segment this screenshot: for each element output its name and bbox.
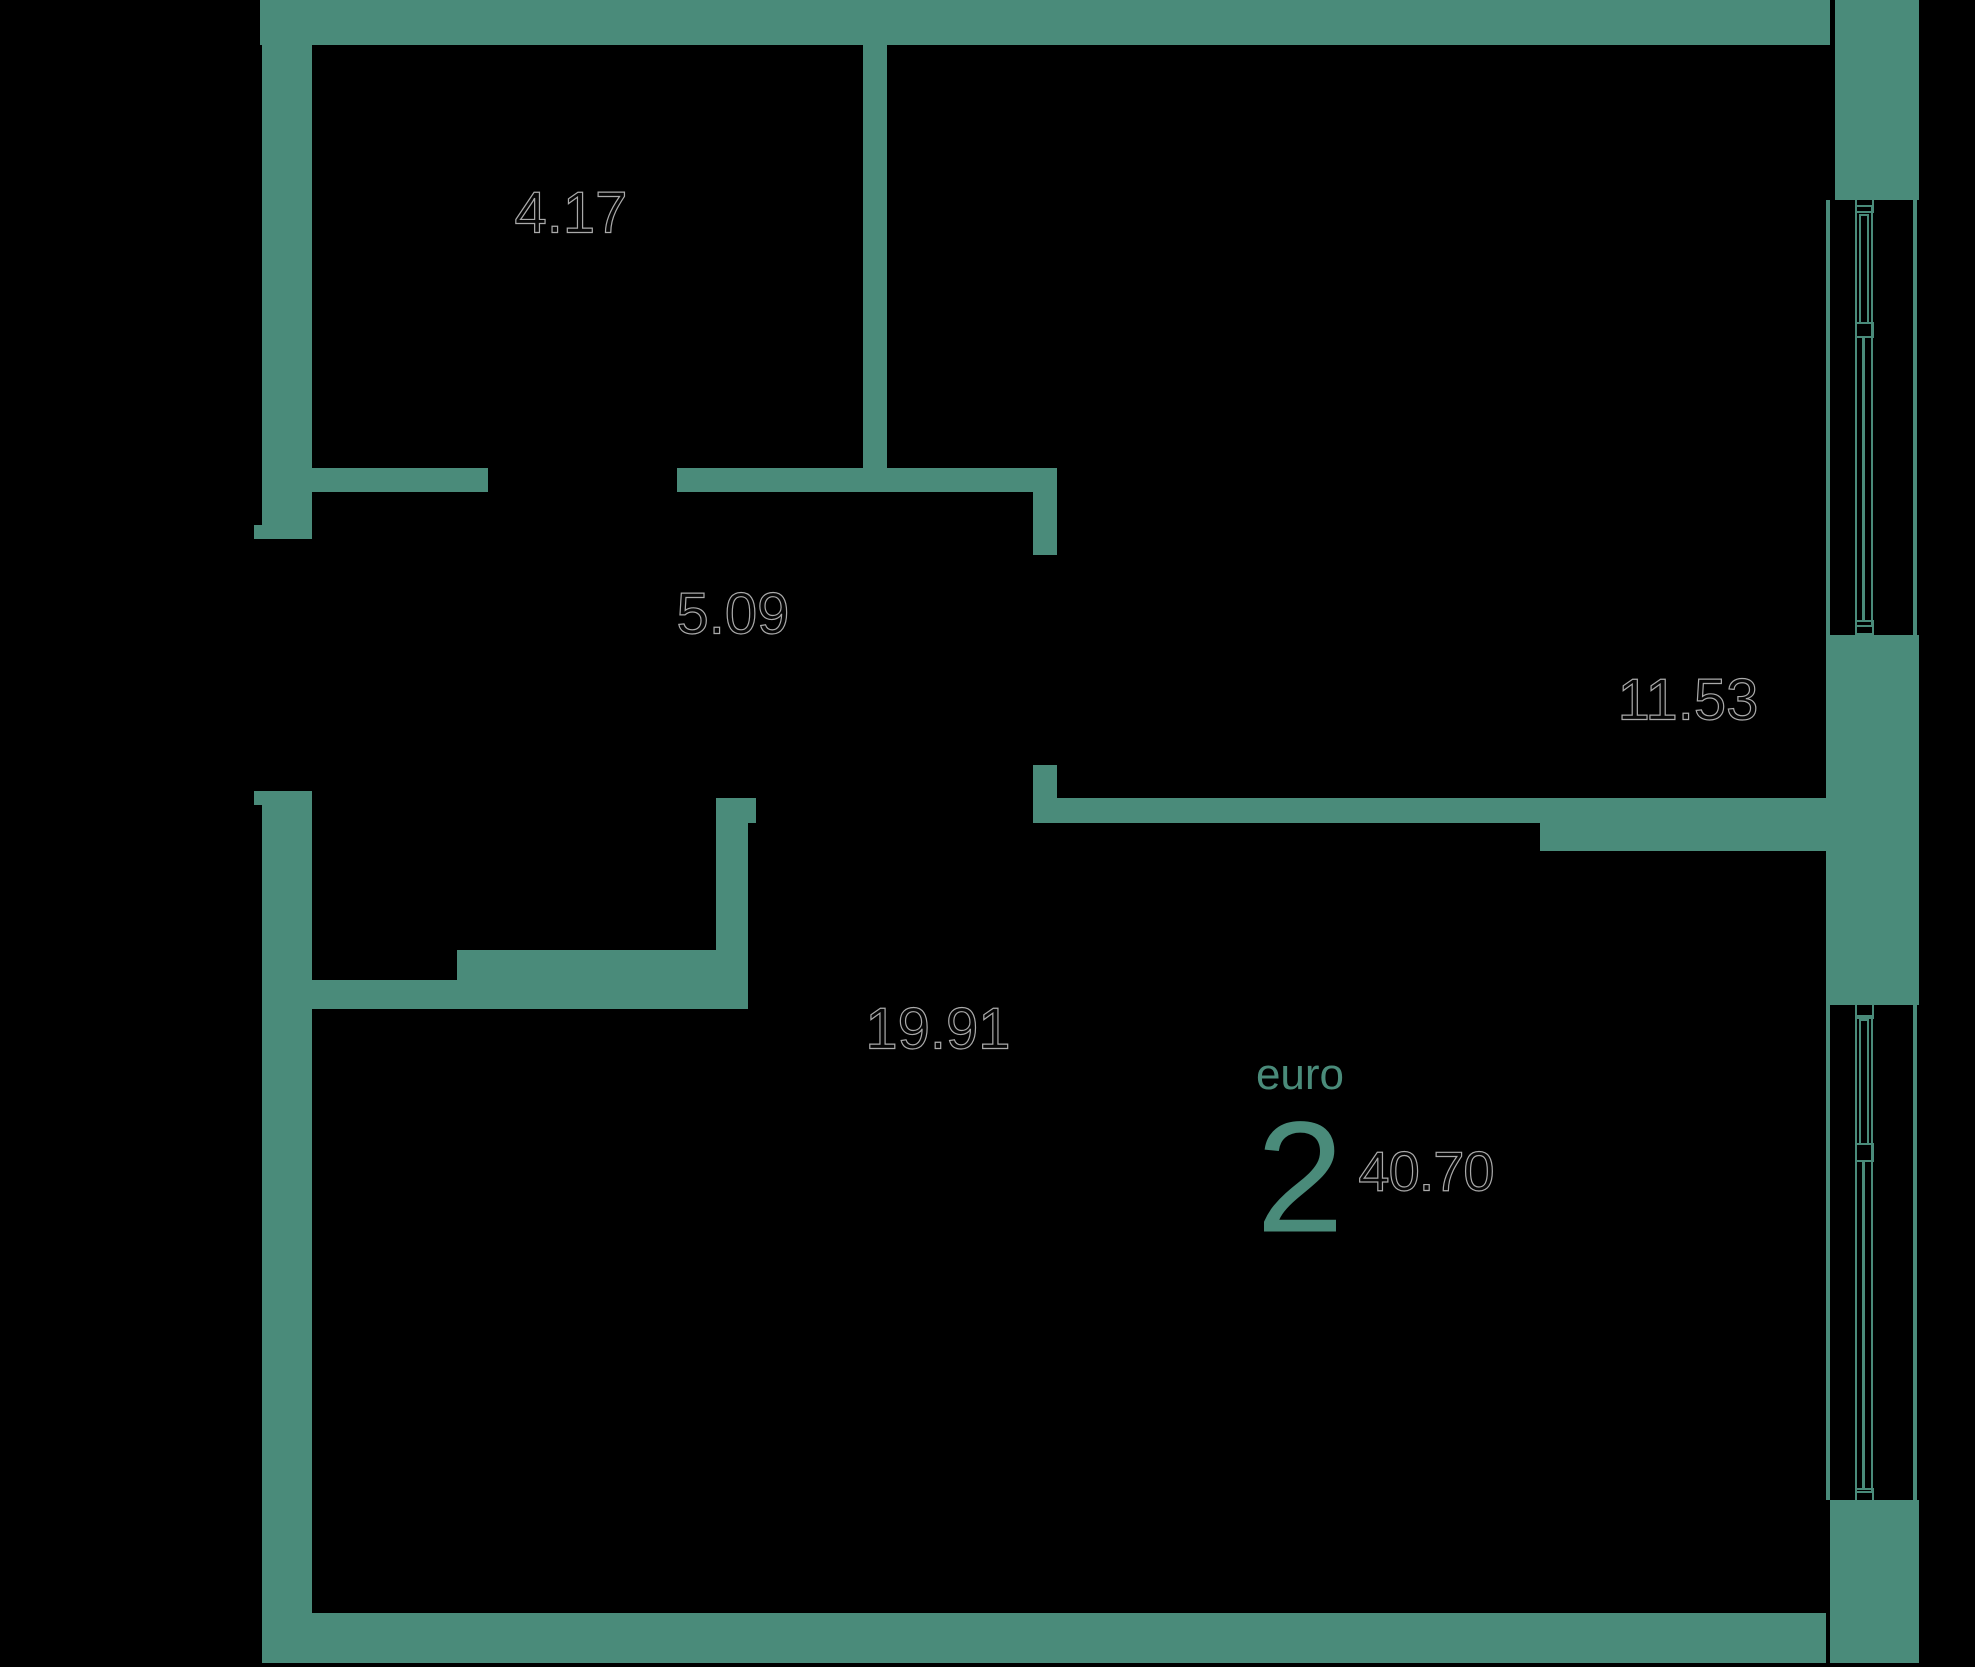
window1-sash <box>1859 214 1869 324</box>
window2-top-cap <box>1855 1003 1874 1019</box>
window2-sash <box>1859 1019 1869 1145</box>
left-door-jamb-upper <box>254 525 264 539</box>
room-area-bedroom: 11.53 <box>1618 667 1759 734</box>
hallway-left-wall <box>716 798 748 1009</box>
window2-mid-cap <box>1855 1143 1874 1162</box>
window1-top-cap <box>1855 197 1874 213</box>
bedroom-door-jamb-lower <box>1033 765 1057 800</box>
room-area-hallway: 5.09 <box>677 581 790 648</box>
window2-bottom-cap <box>1855 1488 1874 1503</box>
hallway-top-wall <box>677 468 1057 492</box>
top-right-corner-block <box>1835 0 1919 200</box>
window1-bottom-cap <box>1855 620 1874 635</box>
left-outer-wall-lower <box>262 791 312 1663</box>
room-area-bathroom: 4.17 <box>515 180 628 247</box>
bottom-outer-wall <box>262 1613 1826 1663</box>
living-top-wall-thin <box>312 980 457 1009</box>
room-area-living-kitchen: 19.91 <box>865 996 1010 1063</box>
left-outer-wall-upper <box>262 0 312 539</box>
bedroom-bottom-wall-thick <box>1540 823 1828 851</box>
window2-inner-line <box>1826 1005 1830 1500</box>
window1-mid-cap <box>1855 322 1874 338</box>
right-wall-middle-block <box>1826 635 1919 1005</box>
bathroom-bottom-wall <box>312 468 488 492</box>
floor-plan: 4.17 5.09 11.53 19.91 euro 2 40.70 <box>0 0 1975 1667</box>
top-outer-wall <box>260 0 1830 45</box>
bedroom-door-jamb-upper <box>1033 492 1057 555</box>
left-door-jamb-lower <box>254 791 264 805</box>
window1-inner-line <box>1826 200 1830 635</box>
window2-outer-line <box>1913 1005 1917 1500</box>
living-top-wall-thick <box>457 950 718 1009</box>
total-area-label: 40.70 <box>1358 1139 1493 1204</box>
bathroom-right-wall <box>863 45 887 492</box>
rooms-count-label: 2 <box>1256 1088 1344 1269</box>
bottom-right-corner-block <box>1830 1500 1919 1663</box>
hallway-left-wall-stub <box>748 798 756 823</box>
bedroom-bottom-wall <box>1033 798 1828 823</box>
window1-outer-line <box>1913 200 1917 635</box>
